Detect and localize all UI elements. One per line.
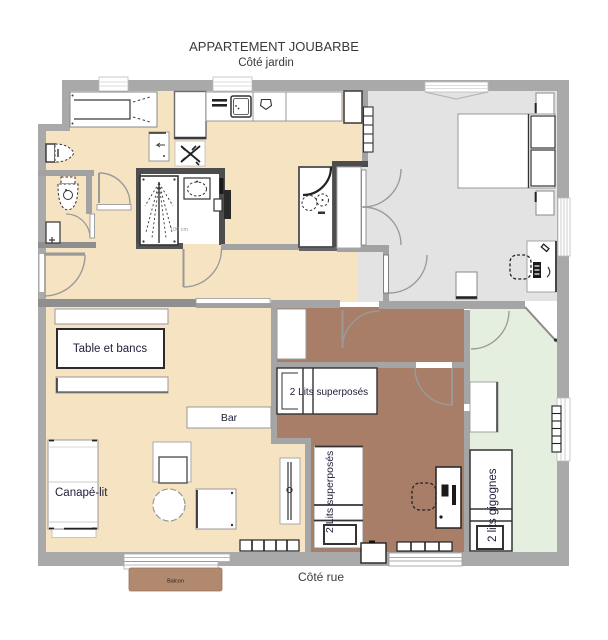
- svg-text:2 Lits superposés: 2 Lits superposés: [324, 451, 336, 533]
- svg-text:2 lits gigognes: 2 lits gigognes: [487, 468, 499, 542]
- svg-text:Canapé-lit: Canapé-lit: [55, 487, 108, 499]
- svg-text:Côté jardin: Côté jardin: [238, 57, 294, 69]
- svg-text:100 cm: 100 cm: [170, 227, 188, 233]
- svg-text:APPARTEMENT JOUBARBE: APPARTEMENT JOUBARBE: [189, 39, 359, 54]
- svg-text:Balcon: Balcon: [167, 579, 184, 585]
- svg-text:2 Lits superposés: 2 Lits superposés: [290, 387, 368, 398]
- svg-text:Bar: Bar: [221, 412, 238, 424]
- svg-text:Table et bancs: Table et bancs: [73, 343, 147, 355]
- svg-text:Côté rue: Côté rue: [298, 570, 344, 584]
